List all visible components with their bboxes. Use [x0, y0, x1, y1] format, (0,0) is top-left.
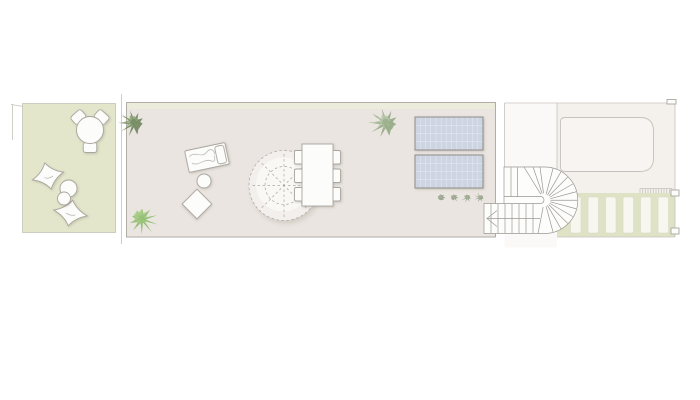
garden-round-table — [77, 117, 104, 144]
roof-deck-zone — [557, 104, 675, 194]
garden-chair — [83, 143, 97, 153]
pouf — [58, 192, 71, 205]
planter-strip — [127, 103, 495, 109]
garden-zone — [23, 104, 116, 233]
pergola-slat — [606, 197, 617, 233]
pergola-slat — [641, 197, 652, 233]
dining-set — [295, 144, 341, 206]
wall-marker-mid — [671, 190, 679, 196]
side-table — [197, 174, 211, 188]
floor-plan — [0, 0, 700, 400]
solar-panel — [415, 155, 483, 188]
wall-marker-top — [667, 100, 676, 105]
wall-marker-bottom — [671, 228, 679, 234]
roof-plan-stage — [0, 0, 700, 400]
solar-panel — [415, 117, 483, 150]
pool — [561, 118, 654, 172]
spiral-staircase — [484, 167, 578, 234]
pergola-slat — [588, 197, 599, 233]
dining-table — [302, 144, 333, 206]
pergola-slat — [658, 197, 669, 233]
pergola-slat — [623, 197, 634, 233]
terrace-zone — [118, 103, 496, 238]
parasol-pole — [283, 184, 285, 186]
